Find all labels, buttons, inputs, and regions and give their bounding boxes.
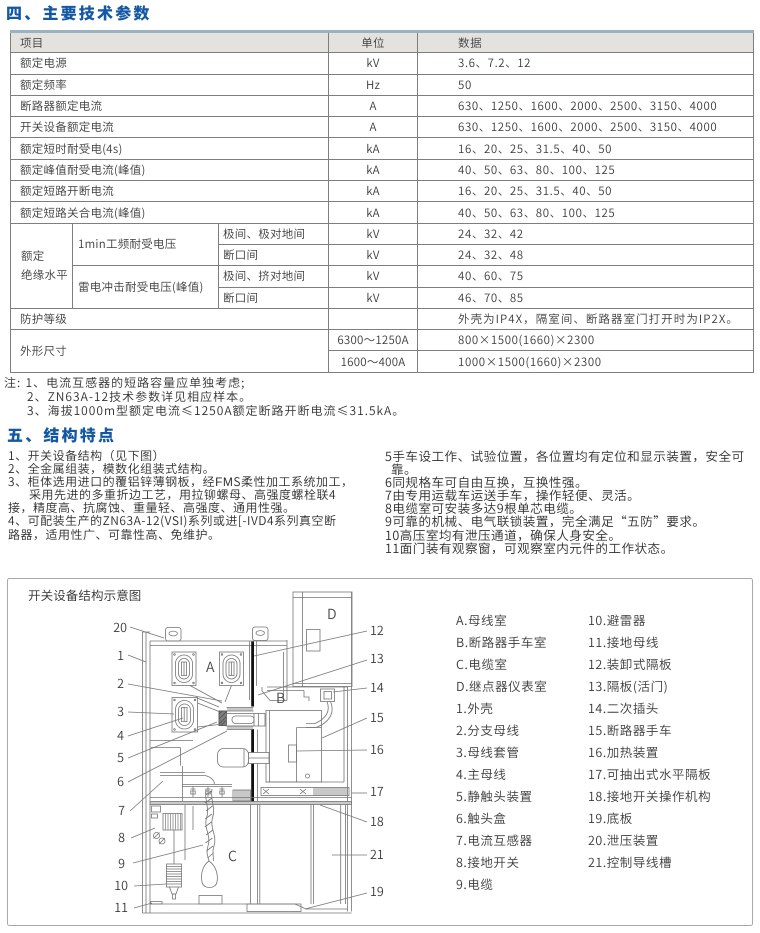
svg-text:D: D [327, 604, 337, 624]
svg-text:开关设备结构示意图: 开关设备结构示意图 [28, 585, 141, 604]
svg-text:2: 2 [117, 673, 124, 692]
svg-text:13: 13 [370, 648, 384, 667]
svg-text:19: 19 [370, 881, 384, 900]
svg-text:14: 14 [370, 677, 384, 696]
svg-text:3: 3 [117, 701, 124, 720]
svg-text:C: C [228, 846, 237, 866]
svg-text:18: 18 [370, 811, 384, 830]
svg-text:4: 4 [117, 725, 124, 744]
svg-text:20: 20 [113, 617, 127, 636]
svg-text:11: 11 [114, 897, 128, 916]
svg-text:15: 15 [370, 707, 384, 726]
svg-text:12: 12 [370, 620, 384, 639]
svg-text:17: 17 [370, 781, 384, 800]
svg-text:21: 21 [370, 844, 384, 863]
svg-text:A: A [206, 657, 215, 677]
svg-text:10: 10 [114, 875, 128, 894]
svg-text:16: 16 [370, 739, 384, 758]
svg-text:8: 8 [118, 827, 125, 846]
svg-text:B: B [276, 688, 285, 708]
svg-text:6: 6 [117, 771, 124, 790]
svg-text:1: 1 [117, 645, 124, 664]
svg-text:5: 5 [117, 747, 124, 766]
svg-text:9: 9 [118, 853, 125, 872]
svg-text:7: 7 [118, 800, 125, 819]
